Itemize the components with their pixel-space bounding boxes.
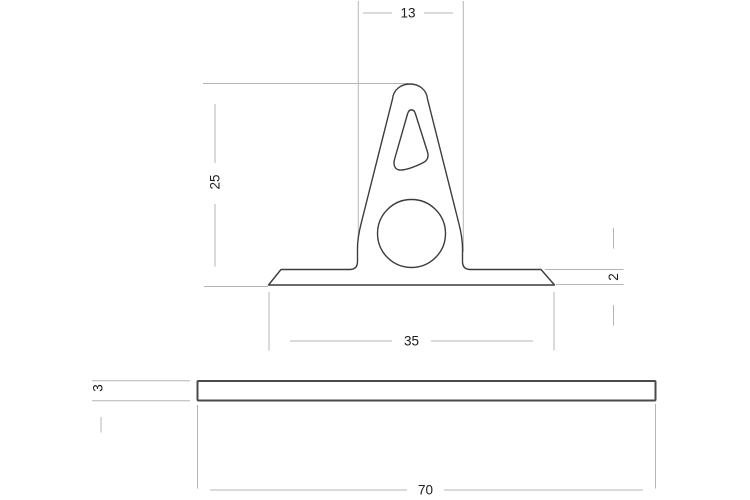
drawing-canvas: 13 25 2 35 (0, 0, 750, 500)
dim-label-25: 25 (208, 174, 223, 189)
dim-label-70: 70 (418, 483, 433, 498)
dim-label-3: 3 (91, 384, 106, 392)
plate-cross-section: 3 70 (91, 381, 656, 498)
dim-plate-width: 70 (198, 404, 656, 498)
technical-drawing: 13 25 2 35 (0, 0, 750, 500)
profile-outline (269, 84, 555, 285)
dim-label-13: 13 (400, 6, 415, 21)
dim-label-35: 35 (404, 334, 419, 349)
dim-plate-thickness: 3 (91, 381, 190, 433)
base-plate-outline (198, 381, 656, 401)
dim-flange-thickness: 2 (545, 228, 624, 326)
profile-cross-section: 13 25 2 35 (203, 1, 624, 351)
dim-stem-width: 13 (358, 1, 463, 252)
dim-flange-width: 35 (269, 292, 554, 351)
dim-label-2: 2 (606, 273, 621, 281)
dim-profile-height: 25 (203, 84, 408, 287)
triangle-hole (394, 110, 428, 170)
circle-hole (378, 200, 446, 268)
